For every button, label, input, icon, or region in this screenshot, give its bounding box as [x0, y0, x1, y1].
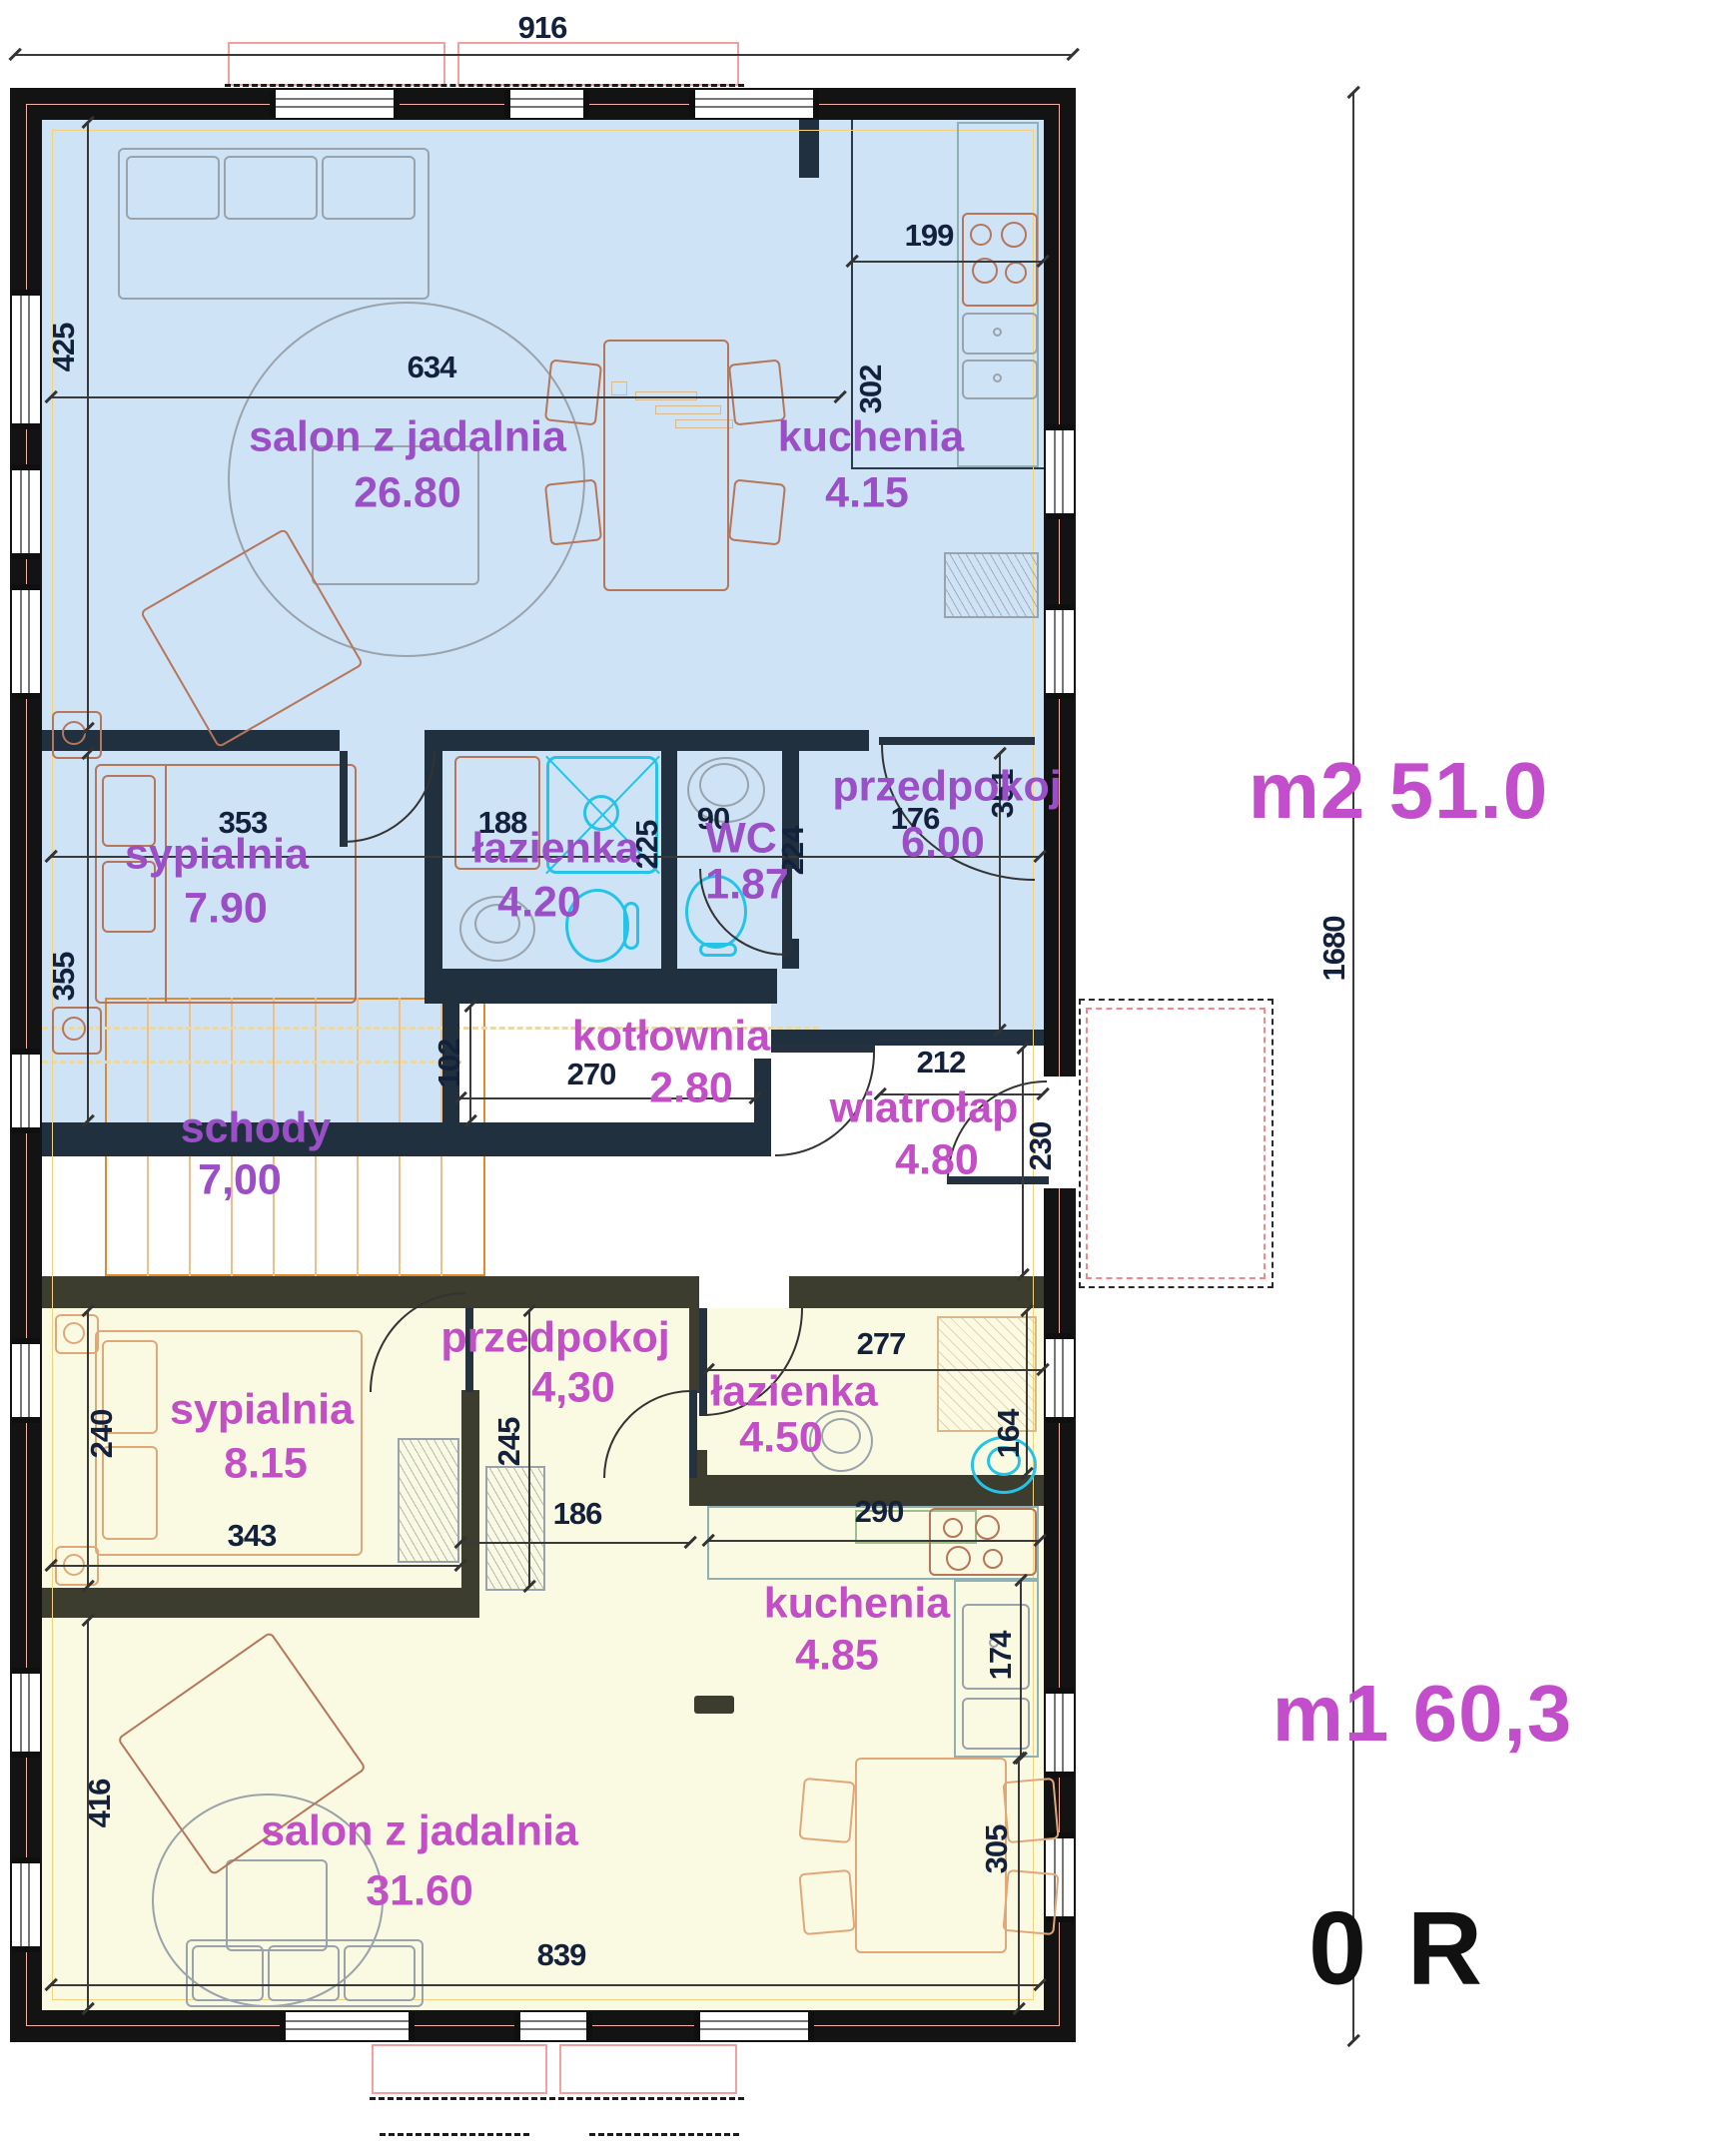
dimension-line: [87, 122, 89, 728]
canopy-outline: [228, 42, 445, 86]
wc-toilet-tank: [699, 943, 737, 957]
door-leaf: [771, 1045, 875, 1053]
sofa-cushion: [224, 156, 318, 220]
window: [504, 90, 589, 118]
window: [1046, 424, 1074, 519]
window: [689, 90, 819, 118]
room-area-lazienka-m1: 4.50: [739, 1414, 823, 1463]
dim-839: 839: [537, 1937, 586, 1973]
burner: [943, 1518, 963, 1538]
room-label-sypialnia-m2: sypialnia: [125, 831, 309, 880]
room-label-lazienka-m2: łazienka: [471, 825, 638, 874]
apartment-label-m1: m1 60,3: [1273, 1668, 1573, 1760]
lamp: [63, 1322, 85, 1344]
dim-164: 164: [991, 1410, 1027, 1459]
dim-302: 302: [853, 365, 889, 414]
room-label-przedpokoj-m2: przedpokoj: [832, 763, 1061, 812]
dim-634: 634: [408, 350, 456, 385]
window: [1046, 1688, 1074, 1778]
apartment-label-m2: m2 51.0: [1249, 745, 1549, 837]
floor-plan: 9161680634425199302353188901763552252243…: [0, 0, 1712, 2156]
sofa-cushion: [126, 156, 220, 220]
chair: [1002, 1869, 1059, 1935]
dim-355: 355: [46, 953, 82, 1002]
room-label-kuchenia-m2: kuchenia: [778, 413, 964, 462]
room-label-lazienka-m1: łazienka: [710, 1368, 877, 1417]
bed-line: [165, 765, 167, 1003]
room-label-sypialnia-m1: sypialnia: [170, 1386, 354, 1435]
dim-270: 270: [567, 1057, 616, 1092]
window: [1046, 604, 1074, 699]
dim-199: 199: [905, 218, 954, 254]
dim-212: 212: [917, 1045, 966, 1080]
door-leaf: [879, 737, 1035, 745]
room-area-sypialnia-m1: 8.15: [224, 1440, 308, 1489]
window: [694, 2012, 814, 2040]
toilet-tank: [623, 902, 639, 950]
window: [12, 584, 40, 699]
fridge-m2: [944, 552, 1039, 618]
chair: [798, 1869, 855, 1935]
dimension-line-916: [14, 54, 1072, 56]
room-label-przedpokoj-m1: przedpokoj: [440, 1314, 669, 1363]
room-area-wc-m2: 1.87: [705, 861, 789, 910]
chair: [798, 1778, 855, 1843]
room-area-salon-m1: 31.60: [366, 1867, 473, 1916]
window: [280, 2012, 415, 2040]
dimension-line: [459, 1542, 689, 1544]
dim-186: 186: [553, 1496, 602, 1532]
dimension-line: [50, 1984, 1039, 1986]
dim-425: 425: [46, 324, 82, 372]
canopy-dashed-edge: [589, 2133, 739, 2136]
window: [12, 1857, 40, 1952]
dimension-line: [1018, 1758, 1020, 2008]
dimension-line: [1020, 1580, 1022, 1758]
canopy-dashed-edge: [370, 2097, 744, 2100]
room-label-schody: schody: [181, 1104, 332, 1153]
dimension-line: [50, 396, 839, 398]
room-label-salon-m2: salon z jadalnia: [249, 413, 566, 462]
canopy-outline: [457, 42, 739, 86]
window: [514, 2012, 592, 2040]
dimension-line: [87, 753, 89, 1120]
room-label-kuchenia-m1: kuchenia: [764, 1580, 950, 1629]
dim-305: 305: [979, 1825, 1015, 1874]
dim-916: 916: [518, 10, 567, 46]
room-area-lazienka-m2: 4.20: [497, 879, 581, 928]
window: [270, 90, 400, 118]
sofa-cushion: [268, 1945, 340, 2001]
burner: [1001, 222, 1027, 248]
dim-240: 240: [84, 1410, 120, 1459]
room-area-kuchenia-m1: 4.85: [795, 1632, 879, 1681]
dim-416: 416: [82, 1780, 118, 1828]
window: [12, 1049, 40, 1133]
window: [12, 290, 40, 429]
room-label-wiatrolap: wiatrołap: [830, 1084, 1019, 1133]
room-label-kotlownia: kotłownia: [572, 1013, 770, 1062]
burner: [975, 1515, 1000, 1540]
canopy-outline: [372, 2044, 547, 2094]
burner: [970, 224, 992, 246]
chair: [728, 478, 786, 545]
room-area-przedpokoj-m1: 4,30: [531, 1364, 615, 1413]
dim-230: 230: [1023, 1122, 1059, 1171]
lamp: [62, 1017, 86, 1041]
room-area-sypialnia-m2: 7.90: [184, 885, 268, 934]
room-label-wc-m2: WC: [705, 815, 777, 864]
canopy-dashed-edge: [225, 84, 744, 87]
window: [12, 1668, 40, 1758]
dimension-line: [707, 1540, 1039, 1542]
dimension-line: [851, 261, 1042, 263]
pillow: [102, 1446, 158, 1540]
dim-343: 343: [228, 1518, 277, 1554]
drain: [993, 373, 1002, 382]
room-area-wiatrolap: 4.80: [895, 1136, 979, 1185]
room-area-kotlownia: 2.80: [649, 1065, 733, 1113]
window: [1046, 1333, 1074, 1423]
sofa-cushion: [192, 1945, 264, 2001]
plan-symbol: [694, 1696, 734, 1714]
sofa-cushion: [322, 156, 416, 220]
window: [12, 1338, 40, 1423]
dim-1680: 1680: [1316, 917, 1352, 982]
room-label-salon-m1: salon z jadalnia: [261, 1807, 578, 1856]
canopy-dashed-edge: [380, 2133, 529, 2136]
dining-table-m2: [603, 340, 729, 591]
burner: [1005, 262, 1027, 284]
porch-outline-pink: [1086, 1008, 1266, 1279]
dim-102: 102: [431, 1040, 467, 1088]
wardrobe: [485, 1466, 545, 1591]
burner: [946, 1546, 971, 1571]
canopy-outline: [559, 2044, 737, 2094]
dim-245: 245: [491, 1418, 527, 1467]
sofa-cushion: [344, 1945, 416, 2001]
dim-290: 290: [855, 1494, 904, 1530]
chair: [544, 478, 602, 545]
room-area-przedpokoj-m2: 6.00: [901, 819, 985, 868]
floor-label: 0 R: [1308, 1890, 1488, 2009]
washbasin-inner: [821, 1418, 861, 1454]
burner: [983, 1549, 1003, 1569]
room-area-schody: 7,00: [198, 1156, 282, 1205]
dim-277: 277: [857, 1326, 906, 1362]
wardrobe: [398, 1438, 459, 1563]
window: [12, 464, 40, 559]
room-area-kuchenia-m2: 4.15: [825, 469, 909, 518]
dimension-line: [50, 1565, 459, 1567]
coffee-table-m1: [226, 1859, 328, 1951]
dimension-line: [469, 1006, 471, 1120]
drain: [993, 328, 1002, 337]
room-area-salon-m2: 26.80: [354, 469, 461, 518]
dim-174: 174: [983, 1632, 1019, 1681]
